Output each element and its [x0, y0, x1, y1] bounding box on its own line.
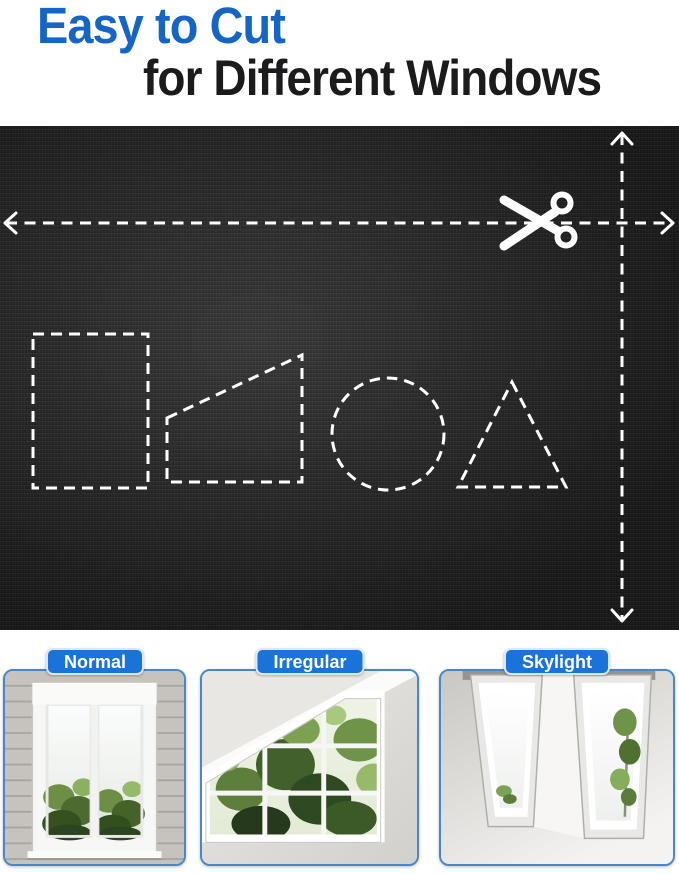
title-line-1: Easy to Cut — [37, 0, 285, 55]
cutting-guides-graphic — [0, 126, 679, 630]
skylight-window-photo — [441, 671, 673, 864]
label-text-normal: Normal — [64, 651, 126, 673]
window-type-label-skylight: Skylight — [504, 648, 610, 675]
irregular-window-photo — [202, 671, 417, 864]
cut-shape-trapezoid — [167, 355, 302, 482]
label-text-skylight: Skylight — [522, 651, 592, 673]
normal-window-photo — [5, 671, 184, 864]
window-type-label-irregular: Irregular — [255, 648, 364, 675]
window-card-skylight — [439, 669, 675, 866]
blackout-fabric-panel — [0, 126, 679, 630]
cut-shape-circle — [332, 378, 444, 490]
label-text-irregular: Irregular — [273, 651, 346, 673]
cut-shape-templates — [33, 334, 566, 490]
window-card-irregular — [200, 669, 419, 866]
product-infographic: Easy to Cut for Different Windows — [0, 0, 679, 874]
scissors-icon — [504, 195, 575, 247]
vertical-cut-line — [612, 133, 632, 621]
title-line-2: for Different Windows — [143, 49, 601, 107]
cut-shape-rectangle — [33, 334, 148, 488]
window-type-label-normal: Normal — [46, 648, 144, 675]
window-card-normal — [3, 669, 186, 866]
cut-shape-triangle — [458, 382, 566, 487]
